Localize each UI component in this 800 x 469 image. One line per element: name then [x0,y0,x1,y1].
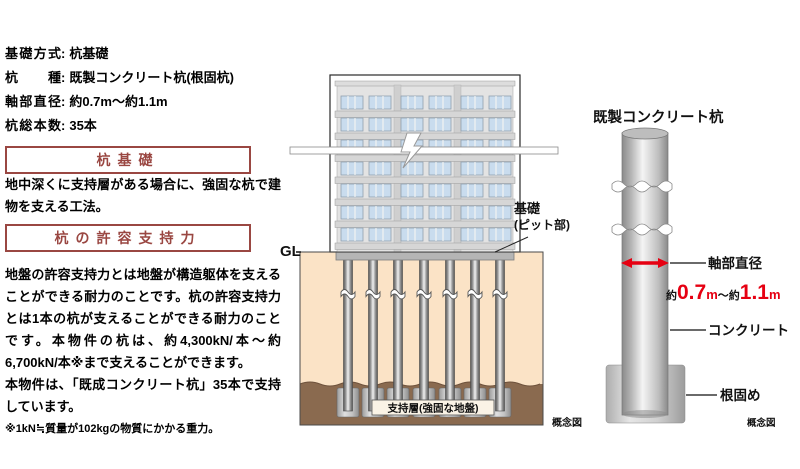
bearing-capacity-paragraph: 地盤の許容支持力とは地盤が構造躯体を支えることができる耐力のことです。杭の許容支… [5,264,281,374]
support-layer-label-box: 支持層(強固な地盤) [372,400,494,415]
bearing-capacity-paragraph-2: 本物件は、「既成コンクリート杭」35本で支持しています。 [5,374,281,418]
spec-value: 35本 [69,118,96,133]
spec-list: 基礎方式:杭基礎 杭種:既製コンクリート杭(根固杭) 軸部直径:約0.7m～約1… [5,42,283,138]
precast-pile-diagram: 既製コンクリート杭 軸部直径 約0.7m～約1.1m コンクリート 根固め 概念… [590,100,800,445]
foundation-label-line1: 基礎 [513,201,541,216]
spec-separator: : [61,42,65,66]
spec-label: 杭種 [5,66,61,90]
section-body-pile-foundation: 地中深くに支持層がある場合に、強固な杭で建物を支える工法。 [5,174,281,218]
concrete-label: コンクリート [708,323,789,338]
diagram-caption: 概念図 [552,416,582,429]
cylinder-top-ellipse [622,128,668,139]
spec-row-pile-count: 杭総本数:35本 [5,114,283,138]
cut-wave-lower [612,224,672,235]
pile-cylinder [622,133,668,415]
spec-label: 軸部直径 [5,90,61,114]
spec-value: 既製コンクリート杭(根固杭) [69,70,234,85]
gl-label: GL [280,243,301,260]
kn-footnote: ※1kN≒質量が102kgの物質にかかる重力。 [5,419,281,440]
section-heading-bearing-capacity: 杭の許容支持力 [5,224,251,252]
pile-diagram-title: 既製コンクリート杭 [593,108,724,126]
diameter-value: 約0.7m～約1.1m [666,281,781,304]
support-layer-label: 支持層(強固な地盤) [387,402,479,415]
building-pile-cross-section-diagram: 支持層(強固な地盤) GL 基礎 (ピット部) 概念図 [280,55,610,445]
spec-label: 杭総本数 [5,114,61,138]
section-heading-pile-foundation: 杭基礎 [5,146,251,174]
spec-value: 杭基礎 [69,46,108,61]
root-annotation: 根固め [686,387,761,403]
cylinder-bottom-shadow [622,410,668,418]
break-line-band [290,147,558,154]
spec-separator: : [61,114,65,138]
foundation-label-line2: (ピット部) [514,217,570,232]
building [330,75,520,252]
spec-separator: : [61,90,65,114]
section-body-bearing-capacity: 地盤の許容支持力とは地盤が構造躯体を支えることができる耐力のことです。杭の許容支… [5,264,281,440]
cut-wave-upper [612,181,672,192]
spec-row-shaft-diameter: 軸部直径:約0.7m～約1.1m [5,90,283,114]
spec-value: 約0.7m～約1.1m [69,94,167,109]
spec-row-pile-kind: 杭種:既製コンクリート杭(根固杭) [5,66,283,90]
spec-row-foundation-type: 基礎方式:杭基礎 [5,42,283,66]
diagram-caption: 概念図 [747,417,776,429]
root-label: 根固め [720,387,761,403]
diameter-label: 軸部直径 [708,255,762,271]
spec-separator: : [61,66,65,90]
concrete-annotation: コンクリート [670,323,789,338]
spec-label: 基礎方式 [5,42,61,66]
